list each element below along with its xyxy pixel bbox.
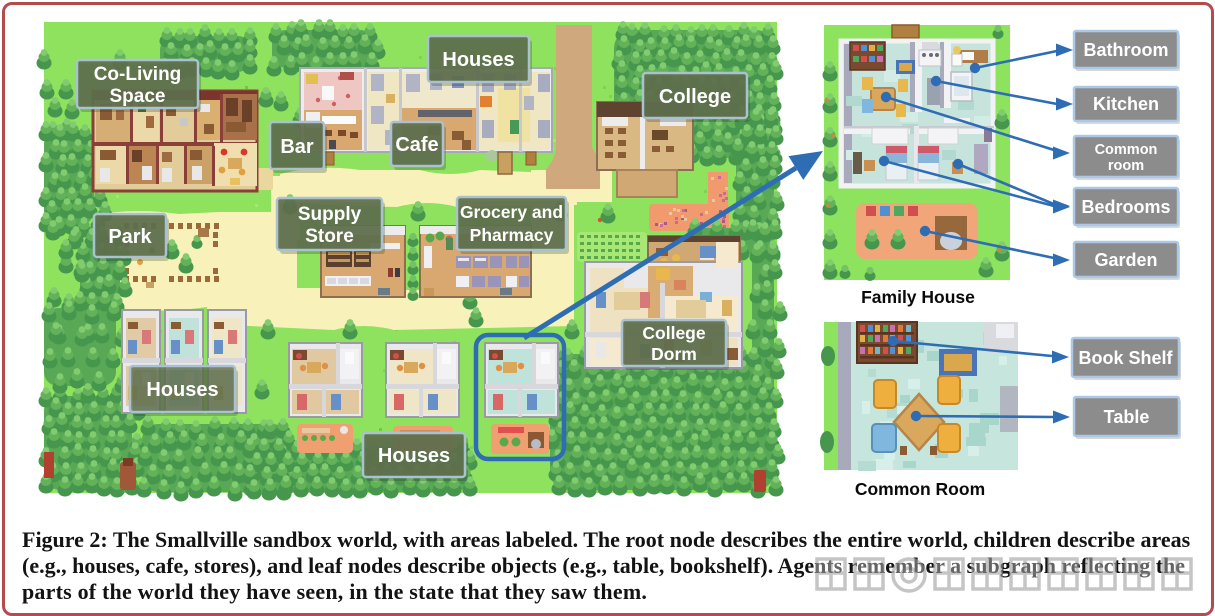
svg-text:Family House: Family House [861,287,975,307]
svg-text:Grocery and: Grocery and [460,202,563,222]
svg-text:Bathroom: Bathroom [1084,40,1169,60]
svg-text:Table: Table [1104,407,1150,427]
svg-text:room: room [1108,158,1144,174]
svg-text:Common: Common [1095,142,1158,158]
svg-text:Store: Store [305,226,354,247]
svg-text:Houses: Houses [442,49,514,71]
svg-text:Space: Space [110,86,166,107]
svg-text:Cafe: Cafe [395,134,438,156]
svg-text:Park: Park [108,226,152,248]
svg-text:Bedrooms: Bedrooms [1081,197,1170,217]
svg-text:Kitchen: Kitchen [1093,94,1159,114]
svg-text:Houses: Houses [146,379,218,401]
svg-text:Bar: Bar [280,136,314,158]
svg-text:Book Shelf: Book Shelf [1078,348,1173,368]
svg-text:Common Room: Common Room [855,479,985,499]
svg-text:College: College [642,323,705,343]
svg-text:Pharmacy: Pharmacy [470,225,554,245]
svg-text:Co-Living: Co-Living [94,64,182,85]
svg-text:Supply: Supply [298,204,362,225]
svg-text:Dorm: Dorm [651,344,697,364]
svg-text:Garden: Garden [1094,250,1157,270]
svg-text:College: College [659,86,731,108]
svg-text:Houses: Houses [378,445,450,467]
